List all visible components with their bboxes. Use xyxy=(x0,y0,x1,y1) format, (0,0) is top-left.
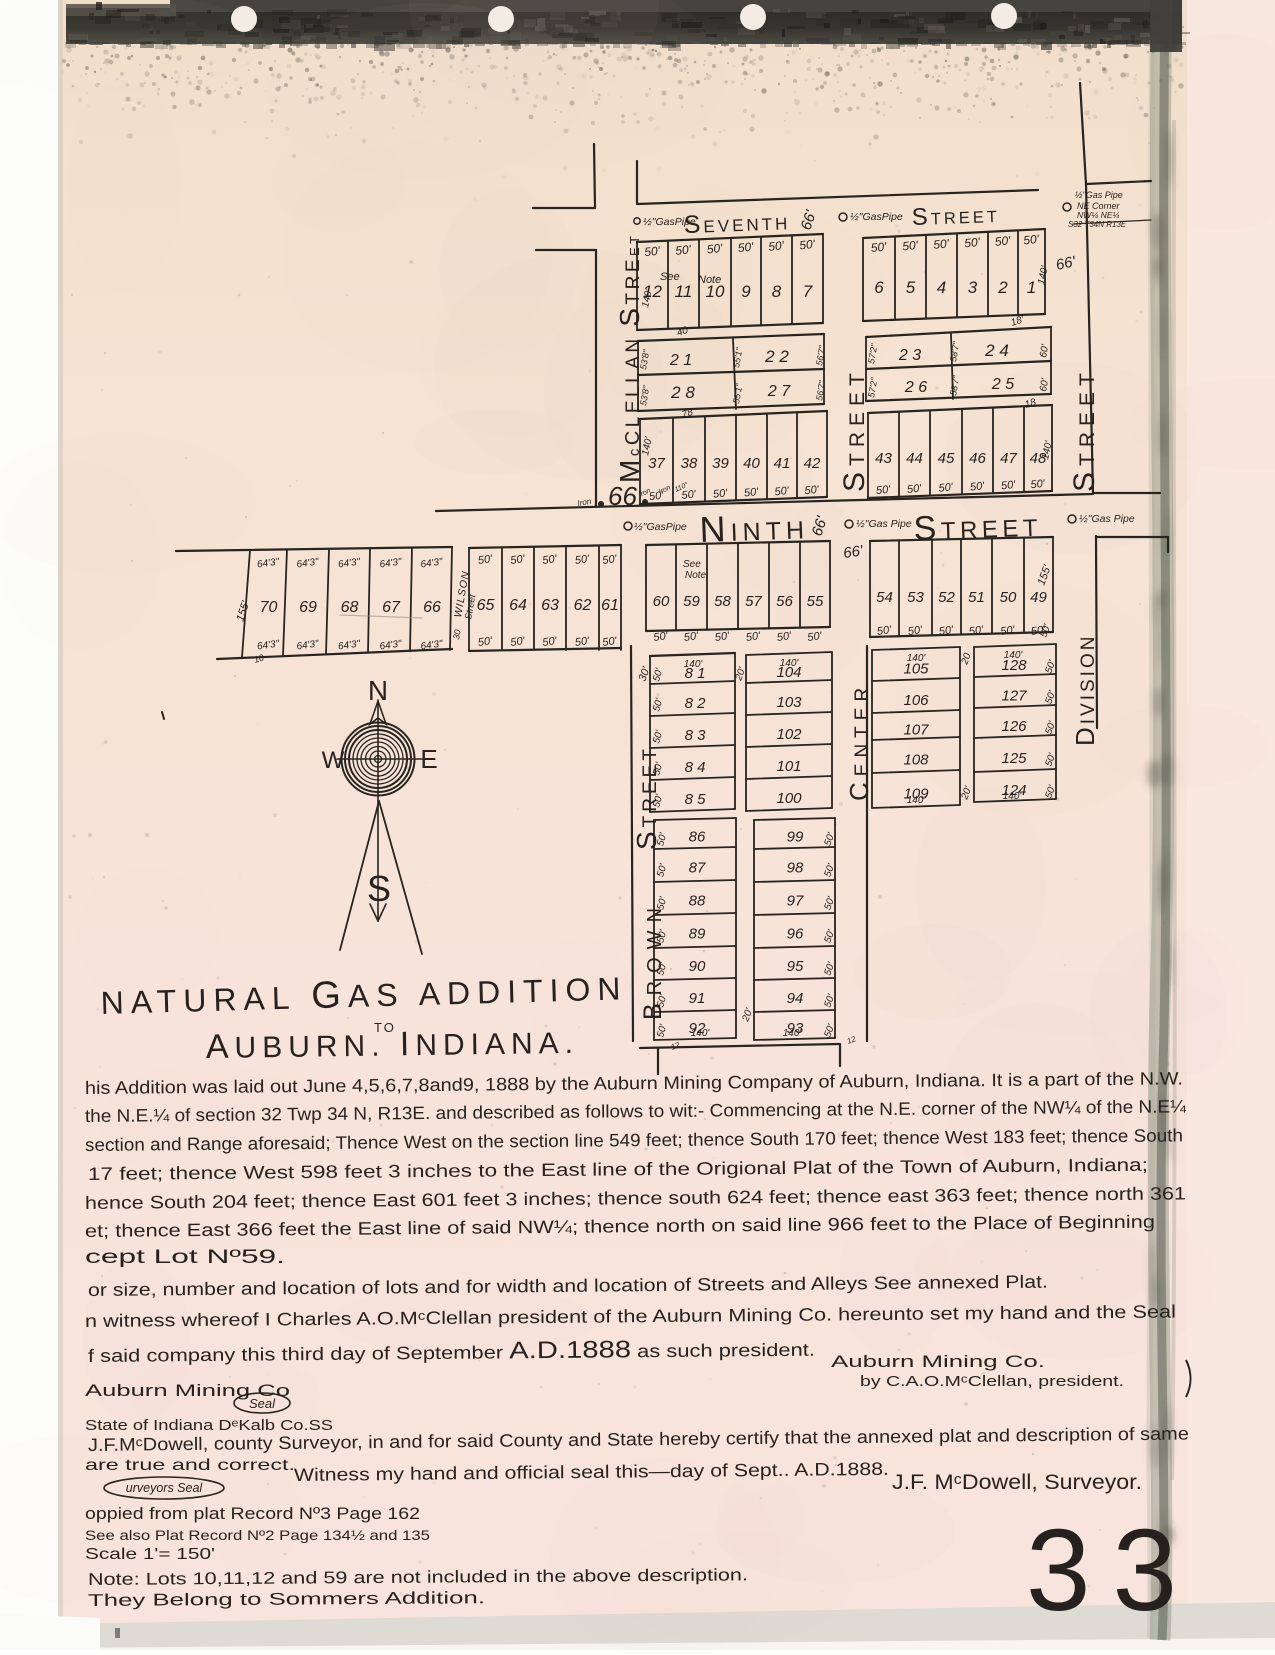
svg-text:97: 97 xyxy=(787,893,804,910)
svg-text:65: 65 xyxy=(477,597,495,614)
svg-text:50: 50 xyxy=(1000,589,1017,606)
svg-text:64: 64 xyxy=(509,597,527,614)
svg-text:62: 62 xyxy=(574,597,592,614)
svg-text:107: 107 xyxy=(903,722,929,739)
svg-text:55: 55 xyxy=(807,593,824,610)
svg-text:68: 68 xyxy=(341,599,359,616)
svg-text:They Belong to Sommers Additio: They Belong to Sommers Addition. xyxy=(88,1588,485,1610)
svg-text:50': 50' xyxy=(774,485,790,499)
svg-text:1: 1 xyxy=(1027,278,1036,297)
svg-text:86: 86 xyxy=(689,829,706,846)
svg-text:8 1: 8 1 xyxy=(685,665,706,682)
svg-text:50': 50' xyxy=(870,239,888,255)
svg-text:50': 50' xyxy=(1000,624,1017,638)
svg-text:J.F. MᶜDowell, Surveyor.: J.F. MᶜDowell, Surveyor. xyxy=(892,1471,1142,1494)
svg-text:103: 103 xyxy=(776,694,802,711)
svg-text:50': 50' xyxy=(776,630,793,644)
svg-text:by C.A.O.MᶜClellan, president.: by C.A.O.MᶜClellan, president. xyxy=(860,1373,1124,1390)
svg-text:50': 50' xyxy=(907,624,924,638)
svg-text:S: S xyxy=(367,868,391,909)
svg-text:50': 50' xyxy=(768,238,786,254)
svg-text:50': 50' xyxy=(1000,479,1016,493)
svg-text:94: 94 xyxy=(787,990,804,1007)
svg-text:37: 37 xyxy=(648,455,665,472)
svg-text:½"Gas Pipe: ½"Gas Pipe xyxy=(1079,513,1135,525)
svg-text:2 5: 2 5 xyxy=(991,376,1014,393)
svg-text:See also Plat Record Nº2 Page: See also Plat Record Nº2 Page 134½ and 1… xyxy=(85,1527,430,1543)
svg-text:½"Gas Pipe: ½"Gas Pipe xyxy=(1075,190,1123,200)
svg-text:30: 30 xyxy=(451,629,463,641)
svg-text:33: 33 xyxy=(1026,1505,1199,1635)
svg-text:61: 61 xyxy=(601,597,619,614)
svg-text:43: 43 xyxy=(875,450,892,467)
svg-text:96: 96 xyxy=(787,926,804,943)
svg-text:87: 87 xyxy=(689,860,706,877)
svg-text:50': 50' xyxy=(994,233,1012,249)
svg-text:50': 50' xyxy=(1030,478,1046,492)
svg-text:Scale 1'= 150': Scale 1'= 150' xyxy=(85,1546,215,1563)
svg-text:57: 57 xyxy=(745,593,762,610)
svg-text:59: 59 xyxy=(683,593,700,610)
svg-text:140': 140' xyxy=(1003,791,1023,802)
svg-text:50': 50' xyxy=(542,635,559,649)
svg-text:69: 69 xyxy=(299,599,317,616)
svg-text:126: 126 xyxy=(1001,718,1027,735)
svg-text:45: 45 xyxy=(938,450,955,467)
svg-text:50': 50' xyxy=(1023,232,1041,248)
svg-text:47: 47 xyxy=(1000,450,1017,467)
svg-text:46: 46 xyxy=(969,450,986,467)
svg-text:50': 50' xyxy=(876,624,893,638)
svg-text:9: 9 xyxy=(741,282,751,301)
svg-text:4: 4 xyxy=(937,278,946,297)
svg-text:See: See xyxy=(683,559,701,570)
svg-text:51: 51 xyxy=(968,589,985,606)
svg-text:49: 49 xyxy=(1030,589,1047,606)
svg-text:98: 98 xyxy=(787,860,804,877)
svg-text:50': 50' xyxy=(906,482,922,496)
svg-text:39: 39 xyxy=(712,455,729,472)
svg-text:Note: Note xyxy=(698,274,721,286)
svg-text:½"GasPipe: ½"GasPipe xyxy=(850,211,903,223)
svg-text:½"Gas Pipe: ½"Gas Pipe xyxy=(856,518,912,530)
svg-text:63: 63 xyxy=(541,597,559,614)
svg-text:50': 50' xyxy=(933,236,951,252)
svg-text:127: 127 xyxy=(1001,688,1027,705)
svg-text:100: 100 xyxy=(776,790,802,807)
svg-text:11: 11 xyxy=(675,282,693,301)
svg-text:50': 50' xyxy=(712,487,728,501)
svg-text:Auburn Mining Co.: Auburn Mining Co. xyxy=(831,1352,1045,1371)
svg-text:2 4: 2 4 xyxy=(984,341,1009,360)
svg-text:8: 8 xyxy=(772,282,782,301)
svg-text:cept Lot Nº59.: cept Lot Nº59. xyxy=(85,1247,285,1268)
svg-text:41: 41 xyxy=(774,455,791,472)
svg-text:50': 50' xyxy=(653,630,670,644)
svg-text:50': 50' xyxy=(477,635,494,649)
svg-text:95: 95 xyxy=(787,958,804,975)
svg-text:50': 50' xyxy=(799,237,817,253)
svg-text:50': 50' xyxy=(938,481,954,495)
svg-text:2 8: 2 8 xyxy=(670,383,695,402)
svg-text:50': 50' xyxy=(510,553,527,567)
svg-text:50': 50' xyxy=(745,630,762,644)
svg-text:50': 50' xyxy=(737,239,755,255)
svg-text:50': 50' xyxy=(602,553,619,567)
svg-text:91: 91 xyxy=(689,990,706,1007)
svg-text:140': 140' xyxy=(691,1028,711,1039)
svg-text:50': 50' xyxy=(542,553,559,567)
svg-text:50': 50' xyxy=(938,624,955,638)
svg-text:See: See xyxy=(660,271,680,283)
svg-text:140': 140' xyxy=(783,1028,803,1039)
svg-text:oppied from plat Record Nº3 Pa: oppied from plat Record Nº3 Page 162 xyxy=(85,1504,420,1523)
svg-text:Seal: Seal xyxy=(249,1396,276,1411)
svg-text:50': 50' xyxy=(574,635,591,649)
svg-text:44: 44 xyxy=(906,450,923,467)
svg-text:NW¼ NE¼: NW¼ NE¼ xyxy=(1077,210,1120,220)
svg-text:6: 6 xyxy=(874,278,884,297)
svg-text:128: 128 xyxy=(1001,657,1027,674)
svg-text:50': 50' xyxy=(574,553,591,567)
svg-text:38: 38 xyxy=(681,455,698,472)
svg-text:70: 70 xyxy=(260,599,278,616)
svg-text:7: 7 xyxy=(803,282,813,301)
svg-text:50': 50' xyxy=(602,635,619,649)
svg-text:125: 125 xyxy=(1001,750,1027,767)
svg-text:½"GasPipe: ½"GasPipe xyxy=(634,521,687,533)
svg-text:8 5: 8 5 xyxy=(685,791,707,808)
svg-text:E: E xyxy=(420,744,437,774)
svg-text:89: 89 xyxy=(689,926,706,943)
svg-text:W: W xyxy=(322,747,345,774)
svg-text:50': 50' xyxy=(969,480,985,494)
svg-text:2: 2 xyxy=(997,278,1008,297)
svg-text:2 7: 2 7 xyxy=(767,383,791,400)
svg-text:40: 40 xyxy=(743,455,760,472)
svg-text:50': 50' xyxy=(706,241,724,257)
svg-text:50': 50' xyxy=(964,235,982,251)
svg-text:50': 50' xyxy=(477,553,494,567)
svg-text:53: 53 xyxy=(907,589,924,606)
svg-text:2 3: 2 3 xyxy=(898,347,921,364)
svg-text:Note: Note xyxy=(685,570,707,581)
svg-text:50': 50' xyxy=(875,484,891,498)
svg-text:2 6: 2 6 xyxy=(904,379,927,396)
svg-text:50': 50' xyxy=(743,486,759,500)
svg-text:66: 66 xyxy=(423,599,441,616)
svg-text:2 2: 2 2 xyxy=(764,347,789,366)
svg-text:2 1: 2 1 xyxy=(669,352,692,369)
svg-text:50': 50' xyxy=(510,635,527,649)
svg-text:N: N xyxy=(368,675,388,706)
svg-text:60: 60 xyxy=(653,593,670,610)
svg-text:50': 50' xyxy=(644,244,662,260)
svg-text:State of Indiana DᵉKalb Co.SS: State of Indiana DᵉKalb Co.SS xyxy=(85,1417,333,1434)
svg-text:52: 52 xyxy=(938,589,955,606)
svg-text:54: 54 xyxy=(876,589,893,606)
svg-text:50': 50' xyxy=(683,630,700,644)
svg-text:42: 42 xyxy=(804,455,821,472)
svg-text:105: 105 xyxy=(903,661,929,678)
svg-text:56: 56 xyxy=(776,593,793,610)
svg-text:50': 50' xyxy=(675,242,693,258)
svg-text:urveyors Seal: urveyors Seal xyxy=(126,1481,204,1495)
svg-text:108: 108 xyxy=(903,752,929,769)
svg-text:99: 99 xyxy=(787,829,804,846)
svg-text:50': 50' xyxy=(807,630,824,644)
svg-text:BROWN: BROWN xyxy=(639,900,667,1020)
svg-text:50': 50' xyxy=(968,624,985,638)
svg-text:102: 102 xyxy=(776,726,802,743)
svg-text:67: 67 xyxy=(382,599,401,616)
svg-text:8 2: 8 2 xyxy=(685,695,707,712)
svg-text:66': 66' xyxy=(842,542,865,562)
svg-text:½"GasPipe: ½"GasPipe xyxy=(643,216,696,228)
svg-text:50': 50' xyxy=(714,630,731,644)
svg-text:90: 90 xyxy=(689,958,706,975)
svg-text:50': 50' xyxy=(902,238,920,254)
svg-text:140': 140' xyxy=(907,795,927,806)
svg-text:8 4: 8 4 xyxy=(685,759,706,776)
svg-text:5: 5 xyxy=(906,278,916,297)
svg-text:8 3: 8 3 xyxy=(685,727,707,744)
svg-text:3: 3 xyxy=(968,278,978,297)
svg-text:50': 50' xyxy=(804,484,820,498)
svg-text:101: 101 xyxy=(776,758,801,775)
svg-text:104: 104 xyxy=(776,664,801,681)
svg-text:66: 66 xyxy=(608,481,637,511)
svg-text:58: 58 xyxy=(714,593,731,610)
svg-text:88: 88 xyxy=(689,893,706,910)
svg-text:106: 106 xyxy=(903,692,929,709)
svg-text:are true and correct.: are true and correct. xyxy=(85,1457,295,1474)
